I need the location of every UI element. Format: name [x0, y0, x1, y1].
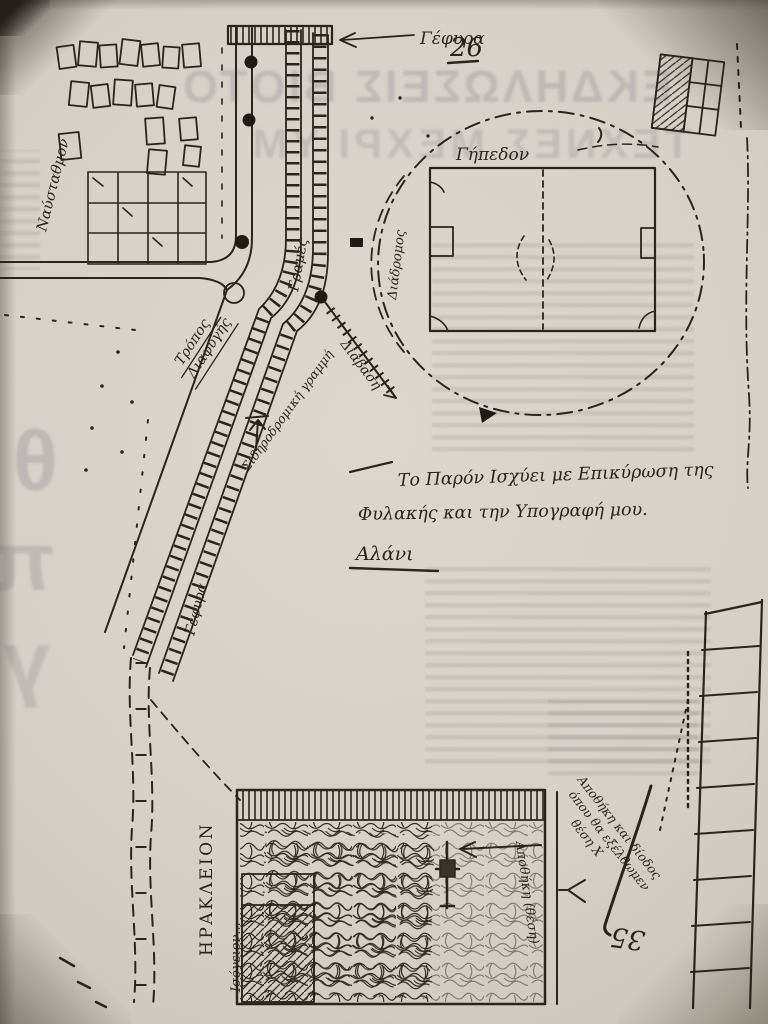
note-signature: Αλάνι	[354, 543, 414, 565]
note-line-2: Φυλακής και την Υπογραφή μου.	[358, 500, 648, 525]
page-number-35: 35	[609, 920, 647, 955]
road-corner-loop	[224, 283, 244, 303]
hand-drawn-escape-map: ΕΚΔΗΛΩΣΕΙΣ ΒΙΟΤΟ ΤΕΧΝΕΣ ΜΕΧΡΙ ΥΜ θ π γ Γ…	[0, 0, 768, 1024]
bleed-paragraph-4	[0, 150, 40, 270]
photographed-page: { "page": { "number_top": "26", "number_…	[0, 0, 768, 1024]
signature-underline	[350, 568, 438, 571]
page-number-26: 26	[449, 33, 483, 63]
city-label: ΗΡΑΚΛΕΙΟΝ	[197, 822, 217, 956]
bleed-headline-1: ΕΚΔΗΛΩΣΕΙΣ ΒΙΟΤΟ	[180, 61, 672, 112]
prison-building	[237, 790, 557, 1004]
bleed-margin-letter-1: θ	[13, 414, 58, 508]
city-block-grid	[88, 172, 206, 264]
note-leading-dash	[350, 462, 392, 472]
bleed-paragraph-3	[548, 700, 698, 778]
ground-floor-label: Ισόγειον...	[229, 922, 244, 993]
bridge-label-arrow	[342, 35, 414, 40]
stadium-track-label: Διάδρομος	[385, 228, 409, 301]
right-top-dash-column	[737, 44, 741, 128]
houses-block	[57, 39, 201, 175]
bridge-left-label: Γέφυρα	[181, 581, 211, 638]
escape-route-label-group: Τρόπος Διαφυγής	[165, 304, 238, 389]
pointer-arrowhead	[559, 880, 585, 902]
handwritten-note: Το Παρόν Ισχύει με Επικύρωση της Φυλακής…	[354, 460, 714, 565]
note-line-1: Το Παρόν Ισχύει με Επικύρωση της	[397, 460, 714, 491]
dashed-road-south	[130, 658, 240, 1006]
bottom-left-marks	[60, 958, 106, 1007]
right-boundary-dashdot	[746, 138, 750, 488]
stadium-gate-mark	[350, 238, 363, 247]
bleed-margin-letter-2: π	[0, 514, 54, 608]
bleed-margin-letter-3: γ	[3, 614, 50, 708]
stadium-label: Γήπεδον	[455, 145, 529, 165]
